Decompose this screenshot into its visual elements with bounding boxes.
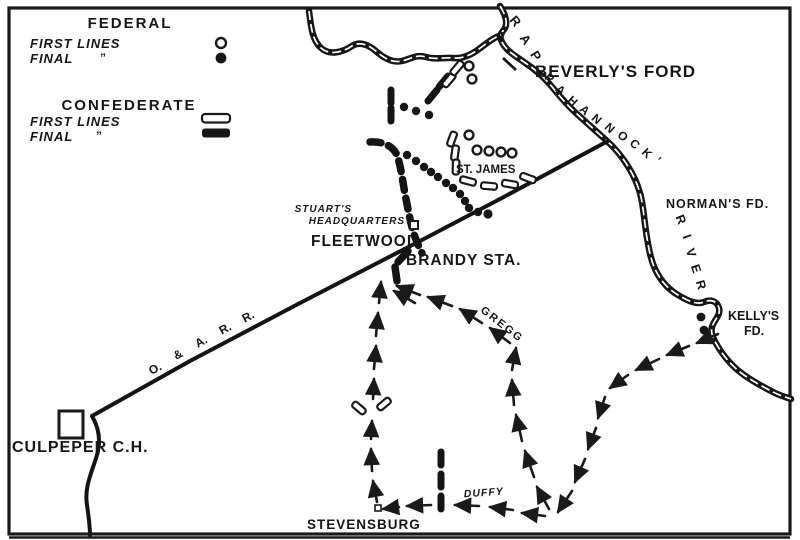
legend-confederate-title: CONFEDERATE <box>61 97 196 114</box>
river-letter: ’ <box>652 154 664 166</box>
federal-first-circle <box>485 147 494 156</box>
label-river-letters: R A P P A H A N N O C K ’ R I V E R <box>507 13 709 291</box>
legend-federal-first-label: FIRST LINES <box>30 36 120 51</box>
route-from-kellys-ford <box>558 334 718 512</box>
federal-final-dot-kellys <box>697 313 706 322</box>
railroad-letter: R. <box>240 307 257 325</box>
confederate-first-bar <box>376 397 392 412</box>
federal-final-dot-kellys <box>700 326 709 335</box>
federal-first-lines <box>465 62 517 158</box>
stevensburg-symbol <box>375 505 381 511</box>
federal-final-dot <box>442 179 450 187</box>
map-canvas: FEDERAL FIRST LINES FINAL ” CONFEDERATE … <box>0 0 800 540</box>
route-arrow <box>428 297 452 306</box>
label-culpeper: CULPEPER C.H. <box>12 439 149 456</box>
label-beverlys-ford: BEVERLY'S FORD <box>535 62 696 81</box>
label-fleetwood: FLEETWOOD <box>311 233 419 250</box>
confederate-first-bar <box>481 182 498 190</box>
label-normans-ford: NORMAN'S FD. <box>666 197 769 211</box>
route-arrow <box>455 505 479 506</box>
route-duffy-to-stevensburg <box>383 505 545 516</box>
federal-first-circle <box>465 62 474 71</box>
federal-final-dot <box>483 209 492 218</box>
route-arrow <box>373 481 377 502</box>
route-arrow <box>373 379 374 399</box>
federal-final-dot <box>456 190 464 198</box>
route-arrow <box>598 397 605 418</box>
route-arrow <box>460 309 482 323</box>
river-letter: R <box>693 279 709 292</box>
federal-first-circle <box>465 131 474 140</box>
federal-final-dot <box>427 168 435 176</box>
federal-first-circle <box>497 148 506 157</box>
federal-final-dot <box>465 204 473 212</box>
confederate-final-dash <box>395 267 397 281</box>
legend-ditto-mark: ” <box>96 129 102 143</box>
route-arrow <box>636 359 659 370</box>
legend-federal-title: FEDERAL <box>88 15 173 32</box>
label-route-gregg: GREGG <box>478 304 526 345</box>
federal-first-circle <box>468 75 477 84</box>
railroad-letter: A. <box>193 332 210 350</box>
route-arrow <box>525 451 534 477</box>
river-letter: I <box>680 233 694 241</box>
route-arrow <box>371 449 372 471</box>
legend-confederate-first-label: FIRST LINES <box>30 114 120 129</box>
confederate-first-bar <box>351 401 367 416</box>
label-kellys-ford-1: KELLY'S <box>728 309 779 323</box>
brandy-station-battle-map: FEDERAL FIRST LINES FINAL ” CONFEDERATE … <box>0 0 800 540</box>
federal-final-dot <box>400 103 408 111</box>
label-railroad-letters: O. & A. R. R. <box>146 307 256 377</box>
river-letter: O <box>615 128 631 145</box>
label-st-james: ST. JAMES <box>456 164 516 176</box>
route-arrow <box>376 313 378 336</box>
label-brandy-station: BRANDY STA. <box>406 252 522 269</box>
legend-confederate-final-symbol <box>202 129 230 138</box>
federal-final-dot <box>403 151 411 159</box>
federal-first-circle <box>473 146 482 155</box>
confederate-first-bar <box>502 179 519 188</box>
river-letter: A <box>517 31 535 48</box>
beverlys-ford-tick <box>503 58 516 70</box>
railroad-letter: R. <box>217 319 234 337</box>
confederate-first-bar <box>449 60 464 76</box>
label-stuarts-hq-2: HEADQUARTERS <box>309 216 405 227</box>
federal-final-dot <box>434 173 442 181</box>
river-letter: V <box>683 247 699 260</box>
fleetwood-house-symbol <box>410 221 418 229</box>
confederate-final-lines <box>370 76 448 516</box>
federal-final-dot <box>449 184 457 192</box>
route-arrow <box>610 375 628 388</box>
legend: FEDERAL FIRST LINES FINAL ” CONFEDERATE … <box>30 15 230 144</box>
route-arrow <box>558 491 572 512</box>
railroad-letter: & <box>171 346 186 363</box>
route-arrow <box>516 415 522 441</box>
federal-final-lines <box>400 103 709 335</box>
legend-federal-final-symbol <box>216 53 227 64</box>
label-route-duffy: DUFFY <box>463 486 504 501</box>
legend-ditto-mark: ” <box>100 51 106 65</box>
label-stevensburg: STEVENSBURG <box>307 517 421 532</box>
label-stuarts-hq-1: STUART'S <box>295 204 352 215</box>
confederate-first-bar <box>519 172 536 184</box>
river-letter: R <box>507 13 525 30</box>
railroad-south-of-culpeper <box>86 416 99 535</box>
orange-and-alexandria-railroad <box>86 141 608 535</box>
federal-final-dot <box>425 111 433 119</box>
confederate-first-bar <box>459 176 476 186</box>
route-arrow <box>383 507 399 509</box>
confederate-final-dash <box>428 90 437 101</box>
route-gregg-to-brandy-station <box>394 286 549 509</box>
federal-final-dot <box>420 163 428 171</box>
federal-first-circle <box>508 149 517 158</box>
river-letter: E <box>688 263 704 275</box>
route-arrow <box>667 346 689 355</box>
route-arrow <box>374 346 376 369</box>
route-arrow <box>588 428 596 449</box>
legend-confederate-final-label: FINAL <box>30 129 73 144</box>
route-arrow <box>512 348 516 370</box>
river-letter: R <box>673 213 689 227</box>
river-letter: K <box>639 145 655 161</box>
route-stevensburg-north <box>371 282 381 502</box>
route-arrow <box>490 507 513 510</box>
route-arrow <box>371 421 372 439</box>
route-arrow <box>522 513 545 516</box>
federal-final-dot <box>412 107 420 115</box>
label-kellys-ford-2: FD. <box>744 324 764 338</box>
route-arrow <box>537 487 549 509</box>
route-arrow <box>379 282 381 303</box>
legend-federal-first-symbol <box>216 38 226 48</box>
river-letter: N <box>602 120 618 136</box>
legend-federal-final-label: FINAL <box>30 51 73 66</box>
river-letter: C <box>627 136 643 152</box>
route-arrow <box>575 459 585 482</box>
legend-confederate-first-symbol <box>202 114 230 123</box>
river-letter: A <box>553 82 569 99</box>
route-arrow <box>512 380 514 405</box>
culpeper-courthouse-symbol <box>59 411 83 438</box>
route-arrow <box>407 505 431 506</box>
federal-final-dot <box>474 208 482 216</box>
federal-final-dot <box>412 157 420 165</box>
